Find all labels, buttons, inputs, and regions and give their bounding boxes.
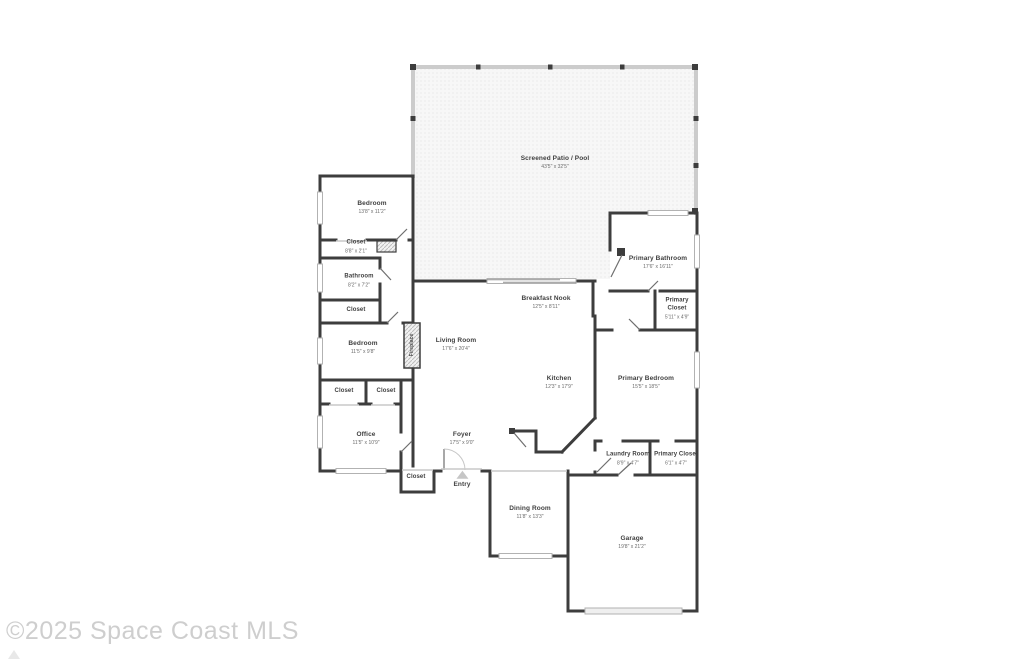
linen-fixture [377,241,396,252]
room-label-bedroom-2: Bedroom 11'5" x 9'8" [348,340,377,356]
room-label-dining-room: Dining Room 11'8" x 13'3" [509,505,551,521]
watermark-text: ©2025 Space Coast MLS [6,617,299,646]
room-label-primary-closet-2: Primary Closet 6'1" x 4'7" [648,451,704,466]
room-label-closet-2: Closet [347,307,366,315]
room-label-laundry-room: Laundry Room 8'9" x 4'7" [606,451,650,466]
room-label-closet-3: Closet [335,388,354,396]
room-label-bathroom: Bathroom 8'2" x 7'2" [344,273,373,288]
entry-door-swing [444,449,465,470]
sliding-door [487,279,576,284]
floorplan-page: Screened Patio / Pool 43'5" x 32'5" Bedr… [0,0,1024,663]
room-label-closet-1: Closet 8'8" x 2'1" [345,239,367,254]
room-label-primary-closet-1: Primary Closet 5'11" x 4'9" [659,297,695,320]
room-label-primary-bedroom: Primary Bedroom 15'5" x 18'5" [618,375,674,391]
room-label-patio: Screened Patio / Pool 43'5" x 32'5" [521,155,590,171]
room-label-closet-5: Closet [407,474,426,482]
garage-door [585,608,682,614]
entry-direction-icon [456,471,468,479]
room-label-breakfast-nook: Breakfast Nook 12'5" x 8'11" [521,295,570,311]
room-label-living-room: Living Room 17'6" x 20'4" [436,337,476,353]
room-label-kitchen: Kitchen 12'3" x 17'9" [545,375,572,391]
room-label-fireplace: Fireplace [409,334,416,357]
room-label-primary-bathroom: Primary Bathroom 17'6" x 16'11" [629,255,687,271]
floorplan-drawing [0,0,1024,663]
room-label-office: Office 11'5" x 10'9" [352,431,379,447]
room-label-foyer: Foyer 17'5" x 9'0" [450,431,475,447]
room-label-bedroom-1: Bedroom 13'8" x 11'2" [357,200,386,216]
room-label-garage: Garage 19'8" x 21'2" [618,535,645,551]
patio-floor [415,69,694,279]
room-label-closet-4: Closet [377,388,396,396]
room-label-entry: Entry [453,471,470,489]
watermark-logo-icon [8,650,20,659]
